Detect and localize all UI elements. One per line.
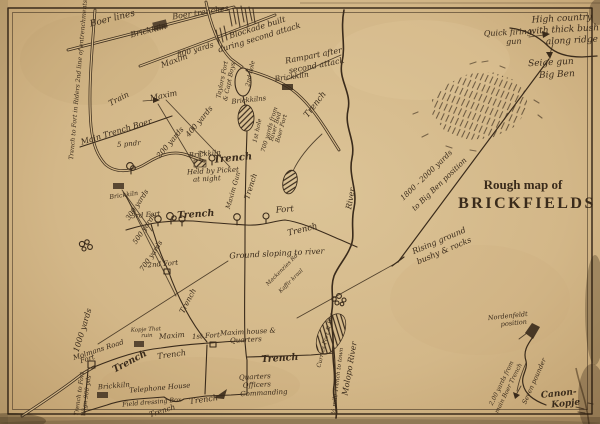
kiln-hole-dark: [281, 169, 300, 195]
map-label: 1st Fort: [192, 331, 221, 341]
map-label: Big Ben: [538, 69, 576, 81]
map-label: Trench: [261, 352, 299, 366]
brickfields-map-svg: Boer linesBrickkilnBoer trenches800 yard…: [0, 0, 600, 424]
map-label: gun: [506, 37, 522, 47]
map-label: River: [344, 186, 357, 211]
map-label: Maxim: [157, 330, 185, 341]
map-label: 5 pndr: [117, 139, 142, 149]
map-label: Fort: [274, 204, 294, 216]
picket-brickkiln-building: [113, 183, 124, 189]
map-label: along ridge: [546, 35, 599, 48]
map-label: 3rd Fort: [131, 210, 161, 221]
kaffir-kraal-circles: [332, 294, 346, 306]
scanned-map-page: Rough map of BRICKFIELDS: [0, 0, 600, 424]
brickkiln-building-e: [282, 84, 293, 90]
boer-trench-arrow: [513, 386, 521, 399]
map-label: Brickkiln: [108, 190, 139, 201]
map-label: Trench: [242, 172, 259, 201]
map-label: 2nd Fort: [146, 259, 178, 270]
map-label: at night: [193, 174, 221, 183]
map-label: Brickkiln: [273, 70, 309, 84]
map-label: 2nd hole: [244, 60, 257, 89]
map-label: Ground sloping to river: [229, 246, 326, 260]
map-label: Seige gun: [528, 57, 574, 69]
brickkiln-building-s: [97, 392, 108, 398]
map-label: Maxim Gun: [224, 171, 242, 211]
map-label: Boer trenches: [171, 4, 230, 22]
map-label: 1000 yards: [72, 307, 94, 353]
map-label: Kopje: [550, 397, 581, 410]
kraal-bush: [79, 240, 92, 251]
map-label: Rough map of: [484, 177, 563, 192]
kopje-ruin-building: [134, 341, 144, 347]
map-label: Trench: [177, 208, 215, 222]
map-label: BRICKFIELDS: [458, 195, 596, 212]
map-label: Maxim: [148, 88, 178, 103]
map-label: Trench: [213, 151, 253, 165]
map-label: Quarters: [230, 335, 262, 345]
map-label: ruin: [141, 333, 153, 340]
map-label: Trench: [287, 222, 319, 239]
map-label: Brickkilns: [230, 94, 267, 106]
kiln-hole-1st: [238, 105, 254, 131]
